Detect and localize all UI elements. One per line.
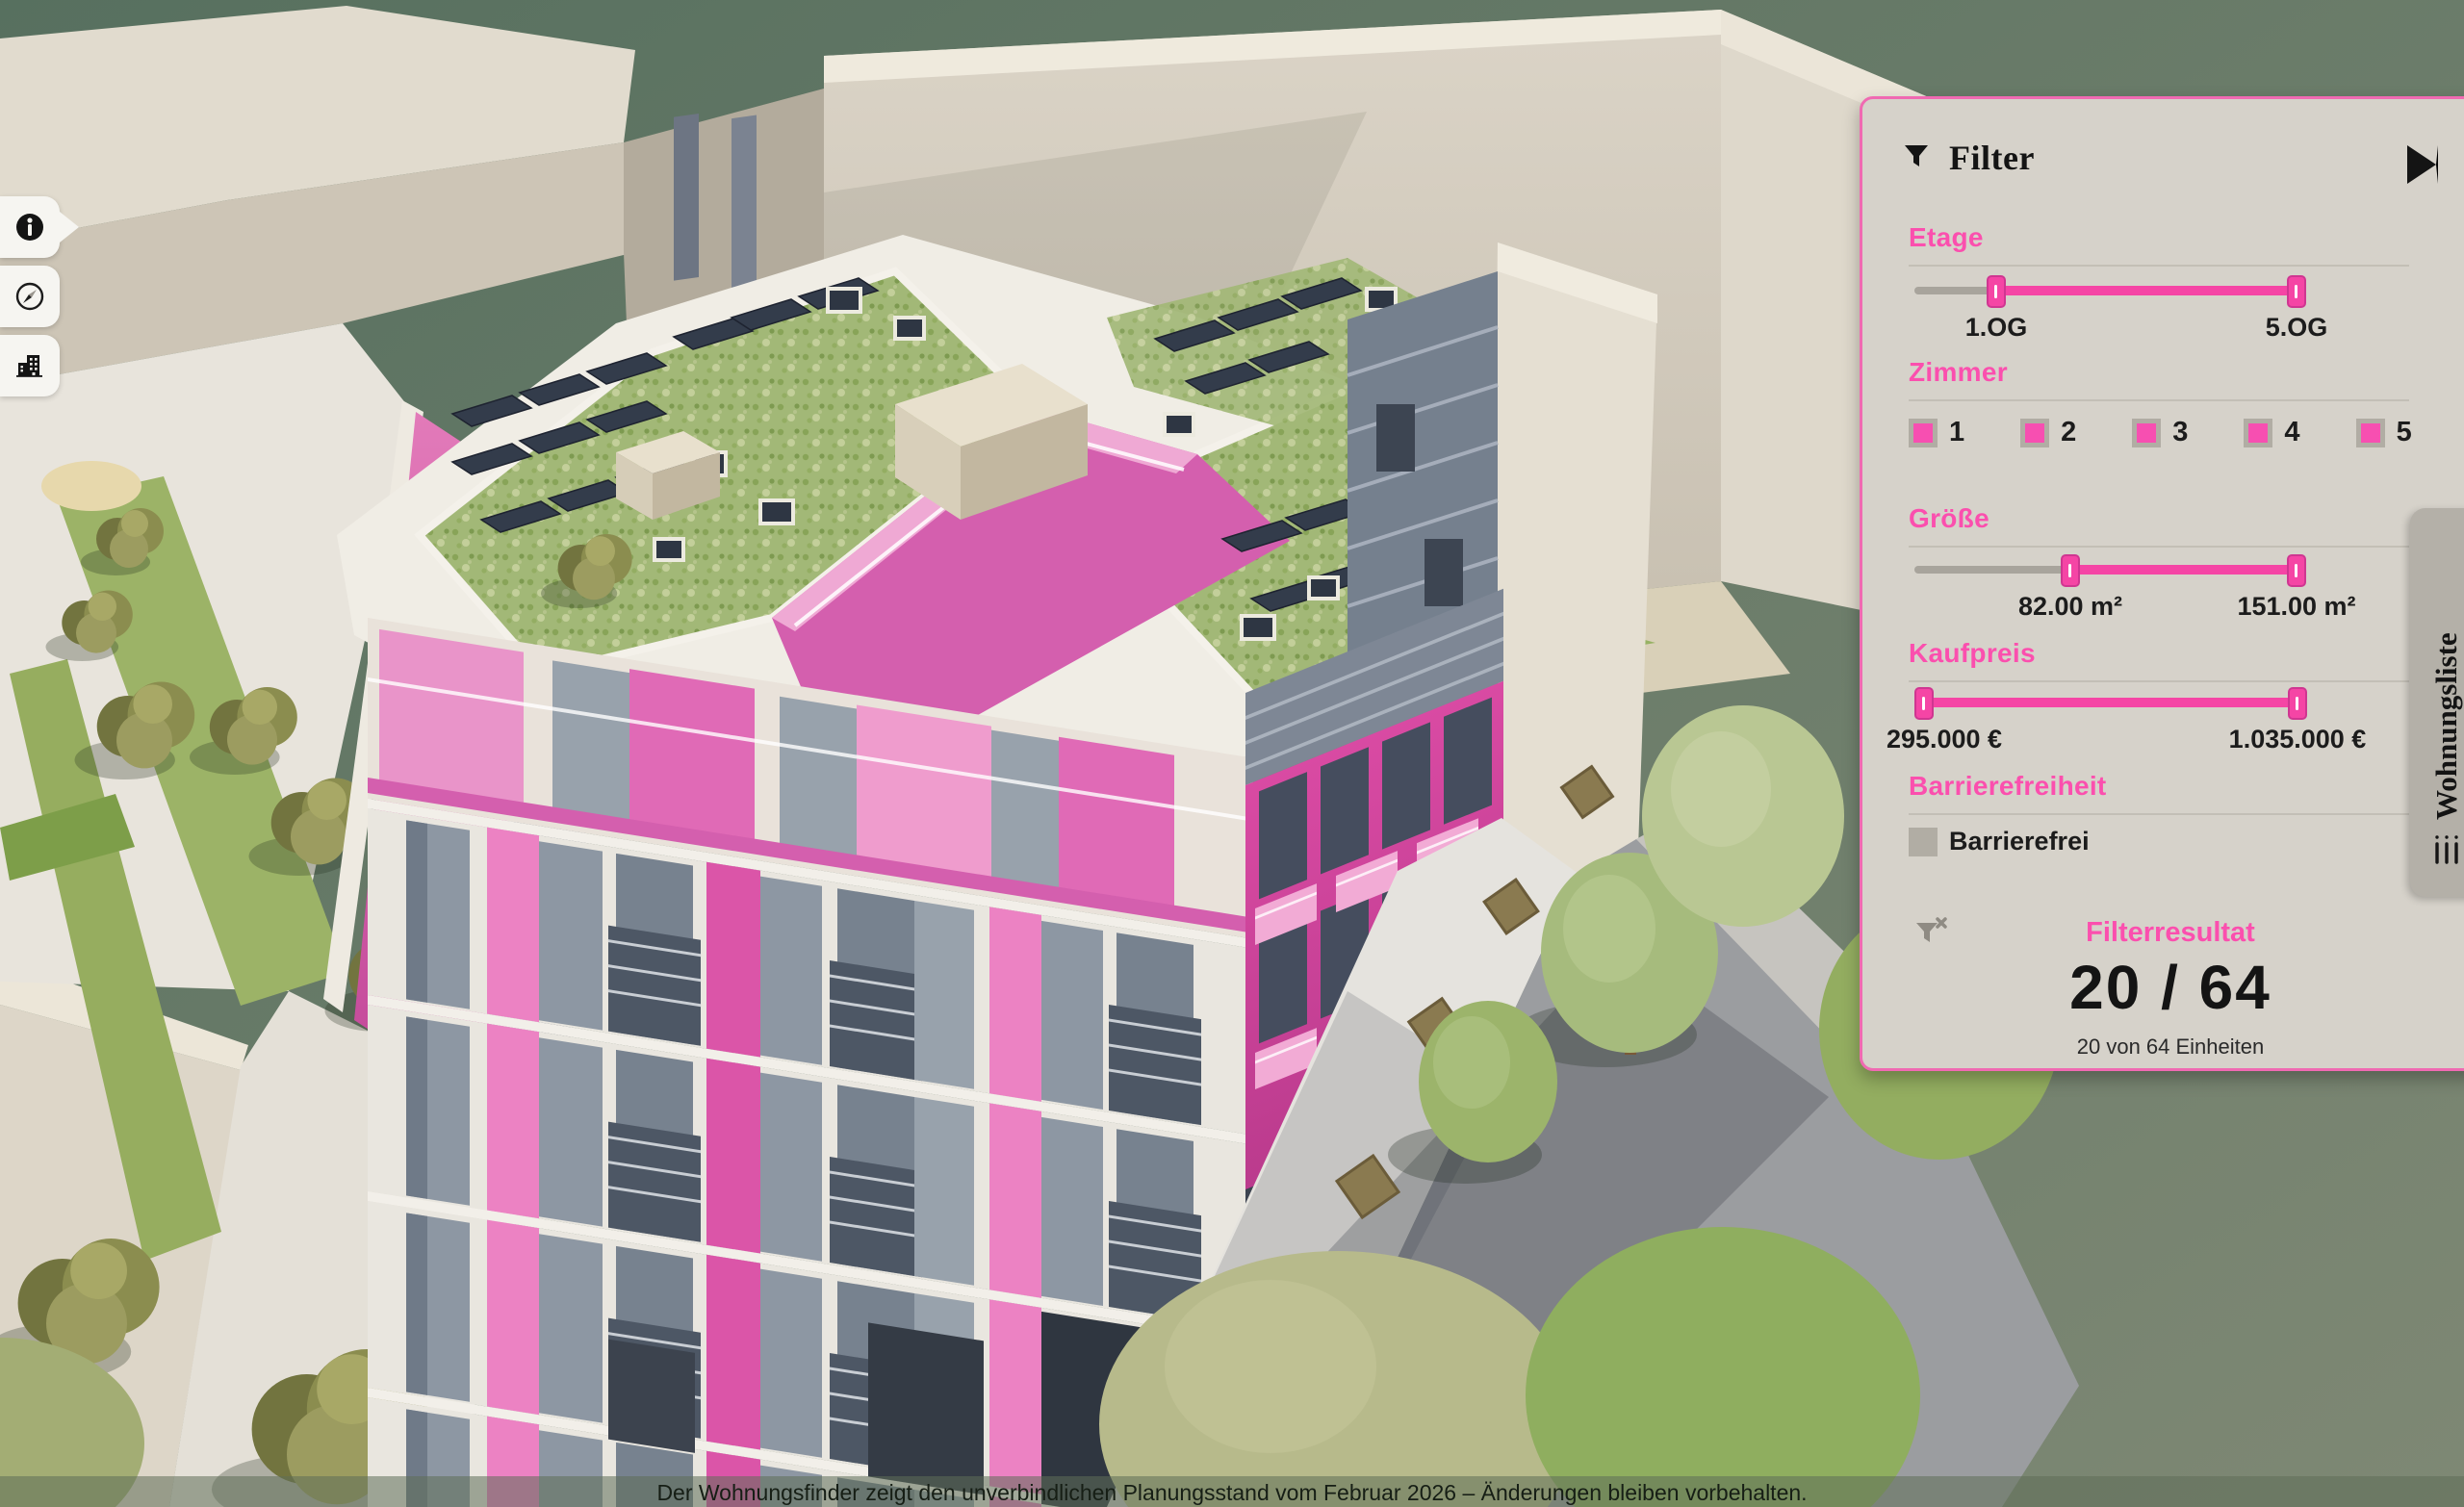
filter-result-subtext: 20 von 64 Einheiten [1968,1034,2373,1060]
panel-title: Filter [1949,138,2035,178]
zimmer-checkbox-1[interactable]: 1 [1909,417,1964,448]
groesse-slider[interactable] [1862,553,2464,592]
zimmer-options: 1 2 3 4 5 [1909,417,2412,448]
info-icon [13,211,46,243]
kaufpreis-slider[interactable] [1862,686,2464,725]
zimmer-checkbox-3[interactable]: 3 [2132,417,2188,448]
viewport-toolbar [0,196,60,404]
filter-result-label: Filterresultat [1968,917,2373,949]
zimmer-checkbox-5[interactable]: 5 [2356,417,2412,448]
filter-icon [1903,143,1930,172]
etage-slider-handle-max[interactable] [2287,275,2306,308]
buildings-button[interactable] [0,335,60,396]
etage-slider-handle-min[interactable] [1987,275,2006,308]
filter-panel: Filter Etage 1.OG 5.OG Zimmer 1 2 [1860,96,2464,1071]
kaufpreis-slider-handle-min[interactable] [1914,687,1934,720]
barrierefreiheit-label: Barrierefreiheit [1909,771,2107,802]
groesse-slider-handle-min[interactable] [2061,554,2080,587]
zimmer-label: Zimmer [1909,357,2008,388]
tooltip-tail [60,212,79,243]
collapse-panel-button[interactable] [2407,145,2438,184]
zimmer-checkbox-2[interactable]: 2 [2020,417,2076,448]
divider [1909,813,2409,815]
kaufpreis-max-value: 1.035.000 € [2201,725,2394,754]
etage-min-value: 1.OG [1900,313,2092,343]
divider [1909,399,2409,401]
barrierefrei-checkbox[interactable]: Barrierefrei [1909,827,2090,856]
etage-label: Etage [1909,222,1984,253]
zimmer-checkbox-4[interactable]: 4 [2244,417,2299,448]
buildings-icon [13,349,46,382]
filter-result-count: 20 / 64 [1968,952,2373,1023]
wohnungsfinder-app: Filter Etage 1.OG 5.OG Zimmer 1 2 [0,0,2464,1507]
divider [1909,546,2409,548]
reset-filter-icon[interactable] [1911,913,1949,952]
wohnungsliste-tab-label: Wohnungsliste [2429,550,2464,820]
etage-slider[interactable] [1862,274,2464,313]
disclaimer: Der Wohnungsfinder zeigt den unverbindli… [0,1476,2464,1507]
compass-button[interactable] [0,266,60,327]
etage-max-value: 5.OG [2200,313,2393,343]
divider [1909,265,2409,267]
groesse-slider-handle-max[interactable] [2287,554,2306,587]
compass-icon [13,280,46,313]
info-button[interactable] [0,196,60,258]
groesse-label: Größe [1909,503,1989,534]
list-icon [2432,835,2461,864]
groesse-min-value: 82.00 m² [1974,592,2167,622]
kaufpreis-min-value: 295.000 € [1848,725,2040,754]
kaufpreis-slider-handle-max[interactable] [2288,687,2307,720]
divider [1909,680,2409,682]
groesse-max-value: 151.00 m² [2200,592,2393,622]
kaufpreis-label: Kaufpreis [1909,638,2036,669]
wohnungsliste-tab[interactable]: Wohnungsliste [2410,508,2464,897]
